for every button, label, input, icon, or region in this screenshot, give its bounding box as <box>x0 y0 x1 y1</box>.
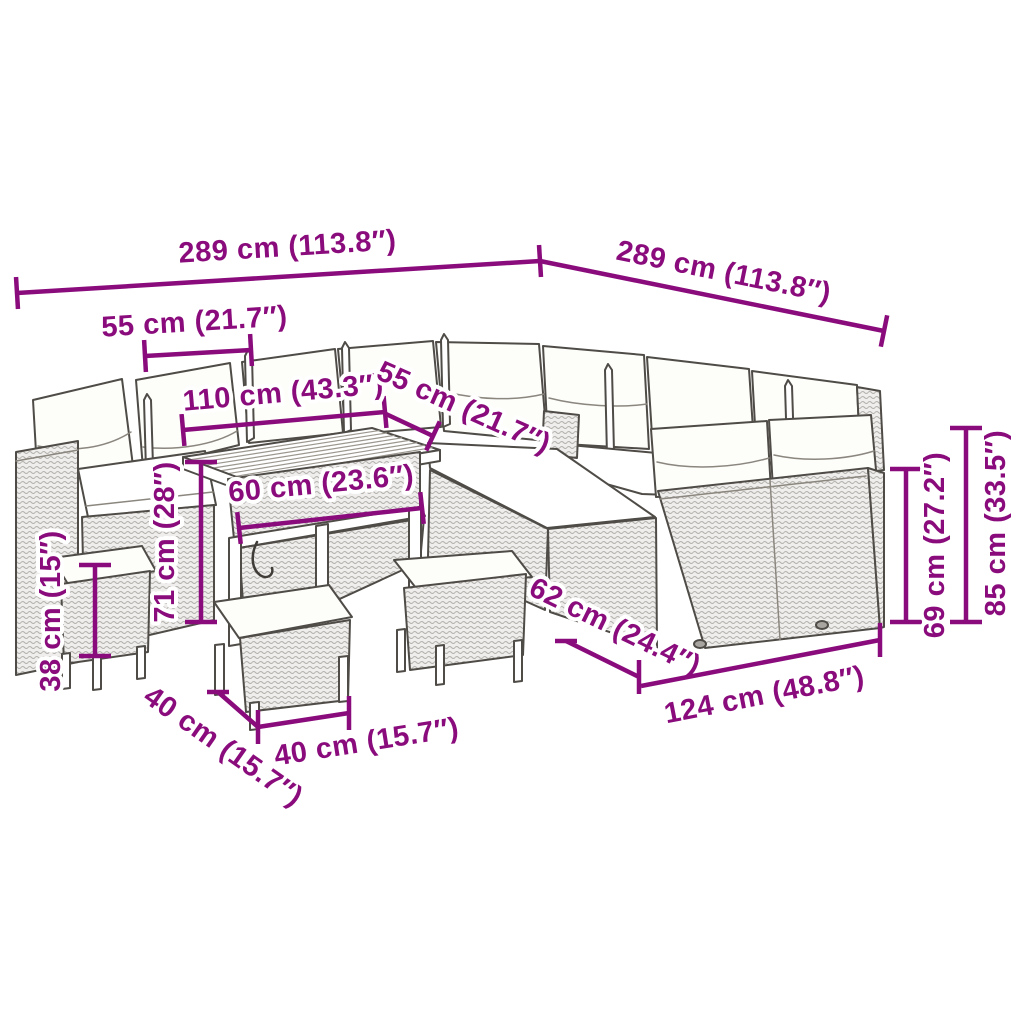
stool-leg <box>397 629 405 672</box>
dimension-total-width-left: 289 cm (113.8″) <box>16 224 541 309</box>
dimension-seat-back-height: 69 cm (27.2″) <box>890 452 951 638</box>
dimension-tick <box>182 414 185 446</box>
diagram-stage: 289 cm (113.8″)289 cm (113.8″)55 cm (21.… <box>0 0 1024 1024</box>
stool-leg <box>215 644 224 695</box>
dimension-label: 85 cm (33.5″) <box>980 430 1012 616</box>
furniture-dimension-diagram: 289 cm (113.8″)289 cm (113.8″)55 cm (21.… <box>0 0 1024 1024</box>
dimension-tick <box>144 340 146 372</box>
stool-leg <box>339 656 348 702</box>
dimension-label: 71 cm (28″) <box>149 461 181 622</box>
stool-leg <box>93 655 101 690</box>
dimension-line <box>258 713 349 727</box>
dimension-label: 38 cm (15″) <box>35 530 67 691</box>
backrest-rod <box>605 364 614 456</box>
dimension-label: 69 cm (27.2″) <box>919 452 951 638</box>
sofa-foot <box>816 621 828 629</box>
dimension-tick <box>881 315 887 346</box>
dimension-line <box>17 261 540 293</box>
stool-leg <box>137 646 145 679</box>
dimension-tick <box>16 277 18 309</box>
dimension-line <box>145 350 251 356</box>
dimension-total-height: 85 cm (33.5″) <box>950 428 1012 622</box>
dimension-label: 55 cm (21.7″) <box>100 300 288 343</box>
dimension-label: 289 cm (113.8″) <box>178 224 398 269</box>
stool-leg <box>436 645 444 685</box>
stool-leg <box>514 640 522 682</box>
stool-body <box>404 574 526 670</box>
dimension-tick <box>250 334 252 366</box>
dimension-tick <box>384 396 387 428</box>
dimension-total-width-right: 289 cm (113.8″) <box>540 235 887 347</box>
sofa-foot <box>694 640 706 648</box>
